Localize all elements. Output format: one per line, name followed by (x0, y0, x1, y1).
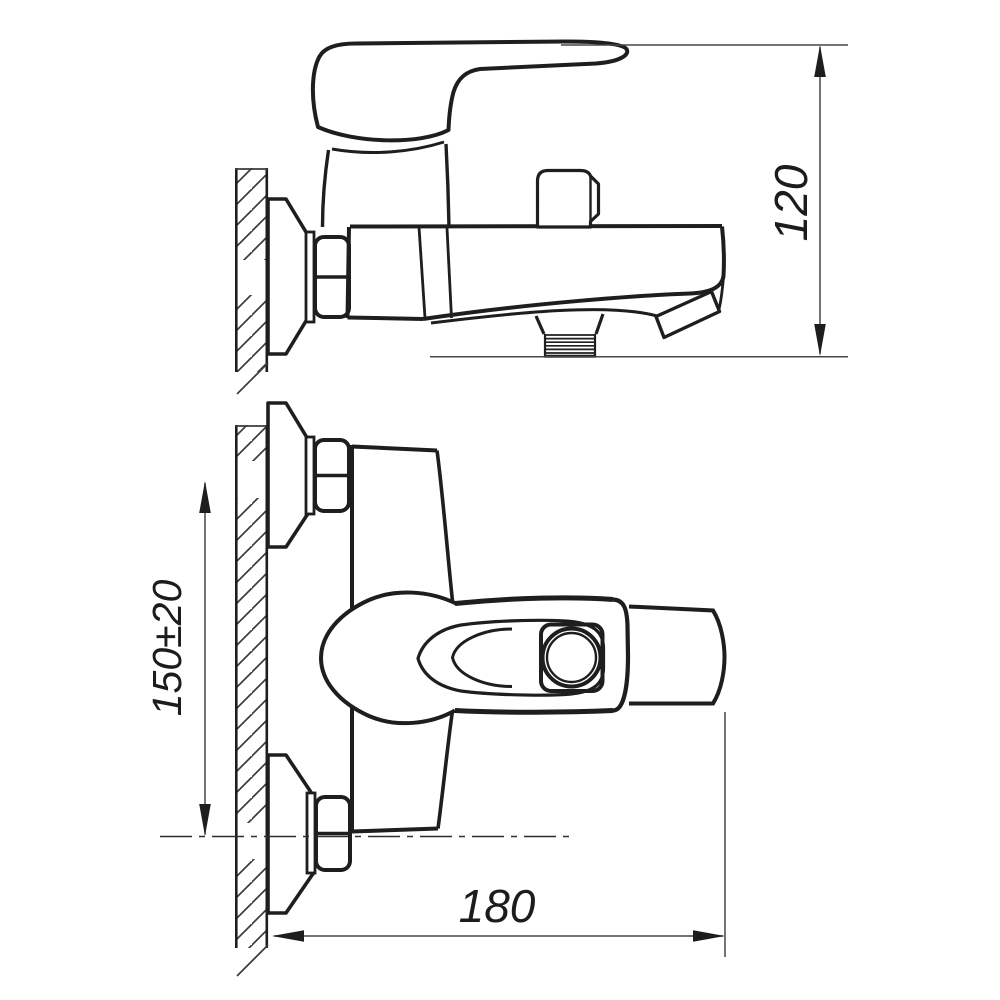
arrowhead-up (814, 45, 826, 77)
arrowhead-down (199, 804, 211, 836)
mixer-body-side (348, 226, 724, 338)
washer-side (306, 232, 314, 322)
shower-outlet-thread (536, 314, 603, 356)
body-seam-2 (447, 228, 452, 318)
escutcheon-upper (268, 403, 309, 547)
wall-hatch (236, 425, 268, 948)
arrowhead-right (693, 930, 725, 942)
arrowhead-up (199, 481, 211, 513)
wall-section-plan (234, 425, 269, 976)
neck-right-edge (446, 144, 449, 227)
dimension-label-height: 120 (765, 164, 817, 241)
arrowhead-down (814, 324, 826, 356)
lever-bottom-edge (455, 711, 613, 713)
washer-upper (306, 437, 314, 514)
lever-top-edge (455, 598, 613, 604)
escutcheon-side (268, 199, 309, 354)
wall-pipe-gap (234, 260, 269, 295)
side-view: 120 (234, 42, 848, 395)
washer-lower (307, 793, 315, 873)
technical-drawing-canvas: 120 (0, 0, 1000, 1000)
dimension-label-mount-spacing: 150±20 (144, 580, 190, 717)
lever-end-cap (613, 600, 628, 711)
arrowhead-left (272, 930, 304, 942)
dimension-label-width: 180 (459, 880, 536, 932)
diverter-button-outer (543, 629, 601, 687)
body-seam-1 (419, 227, 425, 318)
wall-hatch-overflow (237, 945, 268, 976)
grip-inner-arc (453, 629, 513, 687)
handle-lever-side (313, 42, 627, 141)
neck-left-edge (323, 150, 329, 227)
aerator (656, 292, 720, 338)
plan-view: 150±20 180 (144, 403, 725, 976)
wall-pipe-gap-upper (234, 461, 269, 498)
handle-skirt (332, 142, 444, 153)
diverter-knob-side (538, 171, 599, 228)
handle-dome-plan (321, 592, 456, 723)
wall-pipe-gap-lower (234, 823, 269, 859)
wall-section (234, 168, 269, 394)
technical-drawing-page: 120 (0, 0, 1000, 1000)
spout-plan (629, 607, 725, 704)
dimension-150: 150±20 (144, 481, 211, 836)
